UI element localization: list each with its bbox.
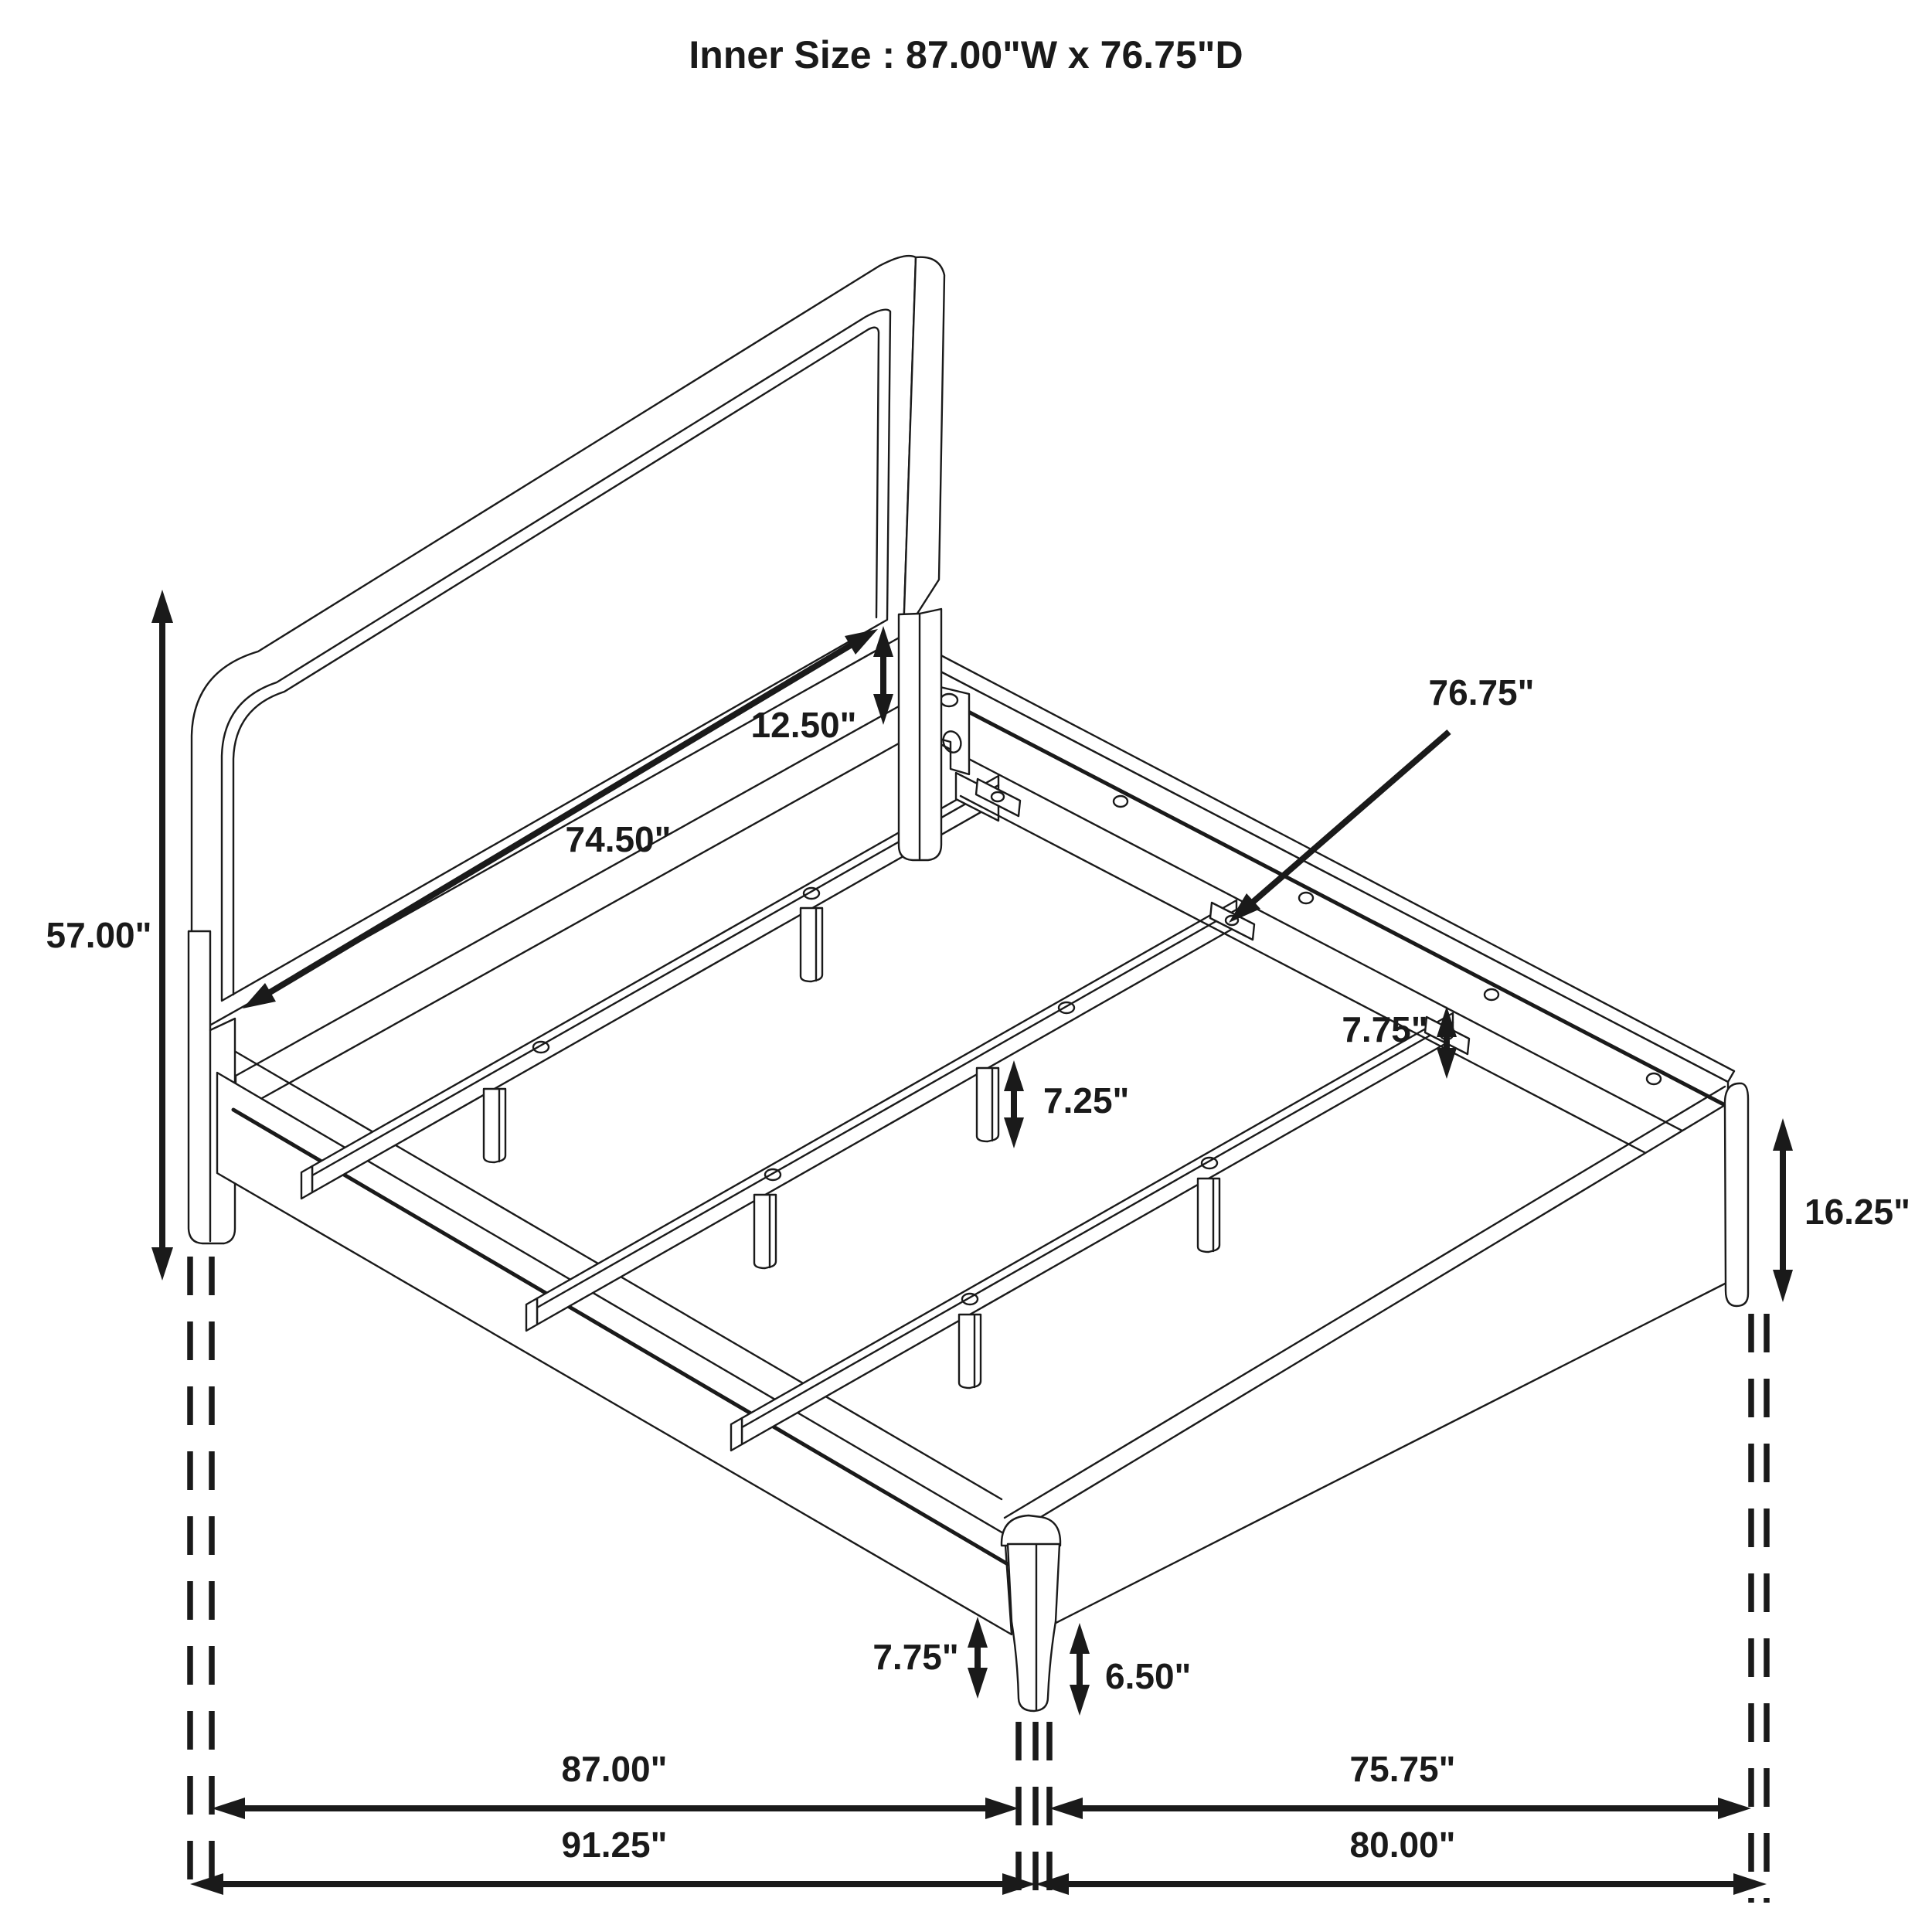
beam-leg	[801, 908, 822, 981]
beam-leg	[959, 1315, 981, 1388]
dim-label-headboard-panel-width: 74.50"	[566, 819, 672, 859]
footboard-face	[1010, 1105, 1730, 1641]
dim-label-side-rail-height: 7.75"	[1342, 1009, 1427, 1049]
front-leg-cap	[1002, 1515, 1060, 1546]
beam-leg	[484, 1089, 505, 1162]
dim-label-headboard-panel-height: 12.50"	[751, 705, 857, 745]
dim-footboard-height: 16.25"	[1773, 1118, 1910, 1302]
dim-label-front-rail-clearance: 7.75"	[872, 1637, 958, 1677]
dim-label-footboard-height: 16.25"	[1804, 1192, 1910, 1232]
dim-label-outer-depth: 80.00"	[1350, 1825, 1456, 1865]
dim-label-headboard-height: 57.00"	[46, 915, 152, 955]
dim-label-outer-width: 91.25"	[562, 1825, 668, 1865]
support-beam-2	[526, 900, 1236, 1331]
dim-inner-width: 87.00"	[212, 1749, 1019, 1819]
dim-label-inner-depth: 75.75"	[1350, 1749, 1456, 1789]
foot-right-post	[1725, 1083, 1748, 1306]
front-leg	[1008, 1544, 1060, 1711]
dim-headboard-height: 57.00"	[46, 590, 173, 1281]
dim-front-rail-clearance: 7.75"	[872, 1617, 988, 1699]
dim-label-inner-width: 87.00"	[562, 1749, 668, 1789]
dim-front-leg-clearance: 6.50"	[1070, 1623, 1191, 1716]
beam-leg	[977, 1068, 998, 1141]
beam-leg	[1198, 1179, 1219, 1252]
beam-leg	[754, 1195, 776, 1268]
dim-outer-width: 91.25"	[190, 1825, 1036, 1895]
dim-outer-depth: 80.00"	[1036, 1825, 1767, 1895]
dim-beam-leg-height: 7.25"	[1004, 1060, 1129, 1148]
dim-support-beam-length: 76.75"	[1229, 672, 1534, 923]
dim-inner-depth: 75.75"	[1049, 1749, 1751, 1819]
right-side-rail	[914, 649, 1734, 1155]
right-side-rail-groove	[952, 703, 1728, 1107]
dim-label-front-leg-clearance: 6.50"	[1105, 1656, 1191, 1696]
diagram-title: Inner Size : 87.00"W x 76.75"D	[689, 33, 1243, 77]
dim-label-support-beam-length: 76.75"	[1429, 672, 1535, 713]
diagram-page: Inner Size : 87.00"W x 76.75"D	[0, 0, 1932, 1932]
bed-dimension-diagram: Inner Size : 87.00"W x 76.75"D	[0, 0, 1932, 1932]
dim-label-beam-leg-height: 7.25"	[1043, 1080, 1129, 1121]
